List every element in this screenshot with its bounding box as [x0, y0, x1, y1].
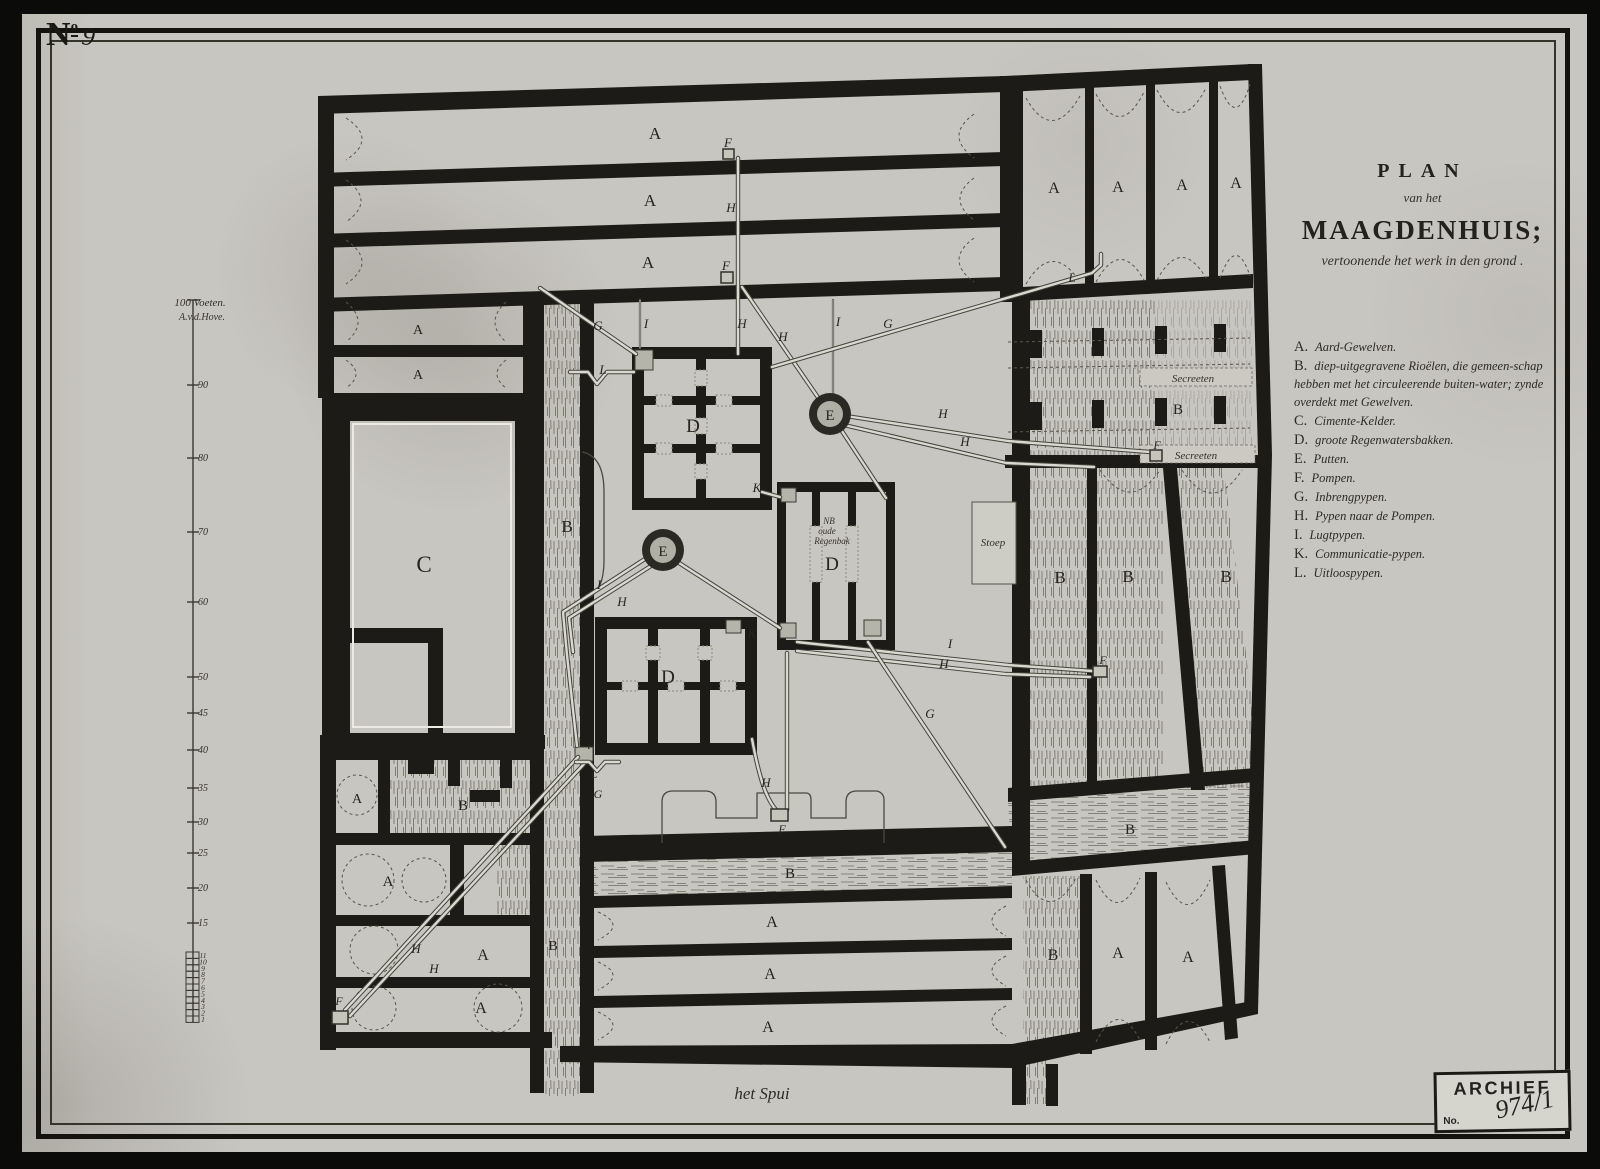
legend-key: E. — [1294, 451, 1306, 467]
scale-tick-label: 25 — [198, 848, 208, 859]
legend-text: Uitloospypen. — [1313, 566, 1383, 580]
scale-bar: 100 Voeten. A.v.d.Hove. 9080706050454035… — [174, 297, 225, 1024]
wall-opening — [622, 681, 638, 691]
dashed-arc — [1220, 84, 1250, 108]
legend-key: H. — [1294, 508, 1308, 524]
wall-opening — [695, 464, 707, 479]
wall — [1155, 326, 1167, 354]
pump-box — [771, 809, 788, 821]
plan-label-h: H — [760, 775, 771, 790]
wall — [1012, 88, 1023, 294]
dashed-arc — [1026, 96, 1080, 121]
title-plan: PLAN — [1280, 160, 1565, 183]
wall — [318, 277, 1004, 312]
plan-label-a: A — [1176, 177, 1188, 194]
legend-item-k: K.Communicatie-pypen. — [1294, 545, 1562, 563]
plan-label-f: F — [723, 135, 733, 150]
legend-text: diep-uitgegravene Rioëlen, die gemeen-sc… — [1294, 359, 1543, 409]
plan-label-regenbak: Regenbak — [813, 536, 850, 546]
plan-label-oude: oude — [818, 526, 836, 536]
legend-text: Inbrengpypen. — [1315, 490, 1387, 504]
scale-ladder-label: 1 — [201, 1015, 205, 1024]
plan-label-h: H — [428, 961, 439, 976]
dashed-arc — [960, 178, 974, 220]
plan-label-a: A — [762, 1019, 774, 1036]
dashed-arc — [992, 956, 1006, 986]
wall — [560, 1044, 1012, 1068]
legend-key: A. — [1294, 339, 1308, 355]
legend-item-f: F.Pompen. — [1294, 469, 1562, 487]
sewer-hatch — [1030, 300, 1155, 455]
legend-text: Aard-Gewelven. — [1315, 340, 1396, 354]
legend-text: Cimente-Kelder. — [1314, 414, 1396, 428]
plan-label-a: A — [352, 792, 363, 807]
sheet-number-n: N — [46, 16, 71, 53]
wall — [320, 735, 545, 749]
plan-label-h: H — [777, 329, 788, 344]
wall-opening — [695, 370, 707, 386]
scale-tick-label: 30 — [197, 817, 208, 828]
legend-item-l: L.Uitloospypen. — [1294, 564, 1562, 582]
plan-label-a: A — [1182, 949, 1194, 966]
sheet-number-sup: o — [71, 19, 79, 37]
wall-opening — [716, 443, 732, 454]
legend-item-g: G.Inbrengpypen. — [1294, 488, 1562, 506]
dashed-arc — [992, 906, 1006, 936]
plan-label-a: A — [383, 874, 394, 890]
legend-item-b: B.diep-uitgegravene Rioëlen, die gemeen-… — [1294, 357, 1562, 411]
plan-label-l: L — [598, 362, 606, 377]
plan-label-c: C — [416, 552, 431, 577]
legend-key: B. — [1294, 358, 1307, 374]
wall-opening — [846, 526, 858, 582]
wall — [378, 749, 390, 837]
wall — [1046, 1064, 1058, 1106]
wall — [580, 300, 594, 1048]
title-block: PLAN van het MAAGDENHUIS; vertoonende he… — [1280, 160, 1565, 270]
wall — [1030, 402, 1042, 430]
wall — [1080, 874, 1092, 1054]
plan-label-d: D — [686, 416, 700, 437]
plan-label-a: A — [649, 124, 662, 143]
scale-tick-label: 20 — [198, 883, 208, 894]
wall — [320, 977, 542, 988]
dashed-arc — [1157, 88, 1206, 113]
scale-tick-label: 45 — [198, 708, 208, 719]
scale-tick-label: 40 — [198, 745, 208, 756]
plan-label-f: F — [334, 994, 343, 1008]
scale-tick-label: 50 — [198, 672, 208, 683]
plan-label-a: A — [642, 253, 655, 272]
wall — [470, 790, 500, 802]
plan-label-i: I — [947, 636, 953, 651]
wall — [1085, 84, 1094, 292]
plan-label-k: K — [752, 480, 763, 495]
wall — [1092, 328, 1104, 356]
plan-label-i: i — [587, 738, 590, 752]
sewer-hatch — [1023, 876, 1080, 1054]
plan-label-d: D — [825, 554, 839, 575]
plan-label-h: H — [959, 434, 970, 449]
scale-tick-label: 90 — [198, 380, 208, 391]
plan-label-b: B — [458, 798, 468, 814]
plan-label-a: A — [413, 368, 424, 383]
dashed-arc — [346, 360, 356, 388]
plan-label-stoep: Stoep — [981, 537, 1006, 549]
plan-label-a: A — [766, 914, 778, 931]
legend-item-e: E.Putten. — [1294, 450, 1562, 468]
wall — [500, 758, 512, 788]
scale-tick-label: 35 — [197, 783, 208, 794]
legend-key: G. — [1294, 489, 1308, 505]
legend-text: Putten. — [1313, 452, 1349, 466]
plan-label-h: H — [725, 200, 736, 215]
legend-key: D. — [1294, 432, 1308, 448]
wall — [318, 152, 1004, 187]
legend-key: I. — [1294, 527, 1302, 543]
scale-tick-label: 70 — [198, 527, 208, 538]
wall — [1155, 398, 1167, 426]
legend-item-c: C.Cimente-Kelder. — [1294, 412, 1562, 430]
plan-label-b: B — [548, 939, 557, 954]
wall — [448, 752, 460, 786]
plan-label-a: A — [1112, 179, 1124, 196]
sheet-number: No9 — [46, 16, 95, 54]
wall — [428, 628, 443, 738]
pump-box — [332, 1011, 348, 1024]
dashed-arc — [598, 1012, 613, 1040]
wall-opening — [646, 646, 660, 660]
archive-stamp: ARCHIEF No. 974/1 — [1433, 1070, 1571, 1133]
wall-opening — [698, 646, 712, 660]
legend-item-d: D.groote Regenwatersbakken. — [1294, 431, 1562, 449]
plan-label-e: E — [825, 408, 834, 424]
scale-label-voeten: 100 Voeten. — [174, 297, 225, 309]
plan-label-a: A — [413, 323, 424, 338]
wall-opening — [656, 395, 672, 406]
legend-text: Communicatie-pypen. — [1315, 547, 1425, 561]
wall-opening — [720, 681, 736, 691]
legend-item-h: H.Pypen naar de Pompen. — [1294, 507, 1562, 525]
plan-label-a: A — [1230, 175, 1242, 192]
legend-key: F. — [1294, 470, 1305, 486]
plan-label-f: F — [721, 258, 731, 273]
dashed-arc — [959, 114, 974, 158]
plan-label-a: A — [644, 191, 657, 210]
plan-label-b: B — [561, 517, 572, 536]
plan-label-b: B — [1125, 822, 1135, 838]
plan-label-i: I — [643, 316, 649, 331]
legend-key: L. — [1294, 565, 1306, 581]
plan-label-a: A — [1112, 945, 1124, 962]
scale-tick-label: 80 — [198, 453, 208, 464]
legend-text: Pompen. — [1312, 471, 1356, 485]
sewer-hatch — [1097, 468, 1163, 788]
wall-opening — [656, 443, 672, 454]
dashed-arc — [598, 962, 613, 990]
junction-box — [864, 620, 881, 636]
plan-label-g: G — [925, 706, 935, 721]
wall — [320, 1032, 552, 1048]
title-subtitle: vertoonende het werk in den grond . — [1280, 254, 1565, 270]
plan-label-b: B — [1220, 567, 1231, 586]
legend-item-i: I.Lugtpypen. — [1294, 526, 1562, 544]
wall — [1015, 468, 1028, 790]
title-maagdenhuis: MAAGDENHUIS; — [1280, 215, 1565, 246]
legend-text: Lugtpypen. — [1309, 528, 1365, 542]
dashed-arc — [1166, 880, 1210, 905]
wall — [1146, 80, 1155, 290]
dashed-arc — [1096, 878, 1140, 903]
plan-label-b: B — [1122, 567, 1133, 586]
dashed-arc — [346, 118, 362, 160]
legend-key: C. — [1294, 413, 1307, 429]
plan-label-e: E — [658, 544, 667, 560]
plan-label-b: B — [1048, 947, 1059, 964]
sewer-hatch — [1028, 468, 1087, 788]
junction-box — [781, 488, 796, 502]
plan-label-b: B — [1173, 402, 1183, 418]
dashed-arc — [350, 926, 398, 974]
sheet-number-value: 9 — [80, 23, 97, 53]
plan-label-f: F — [777, 822, 786, 836]
dashed-arc — [497, 360, 506, 388]
dashed-arc — [598, 912, 613, 940]
legend-item-a: A.Aard-Gewelven. — [1294, 338, 1562, 356]
dashed-arc — [1157, 257, 1206, 280]
scale-tick-label: 15 — [198, 918, 208, 929]
junction-box — [726, 620, 741, 633]
plan-label-l: L — [1067, 270, 1075, 285]
plan-label-b: B — [785, 866, 795, 882]
plan-label-secreeten: Secreeten — [1175, 450, 1218, 462]
plan-label-g: G — [593, 318, 603, 333]
plan-label-secreeten: Secreeten — [1172, 373, 1215, 385]
wall — [318, 213, 1004, 248]
dashed-arc — [346, 180, 361, 222]
pump-box — [723, 149, 734, 159]
legend: A.Aard-Gewelven.B.diep-uitgegravene Rioë… — [1294, 338, 1562, 583]
legend-key: K. — [1294, 546, 1308, 562]
archival-photo-maagdenhuis-plan: { "corner": {"n": "N", "sup": "o", "numb… — [0, 0, 1600, 1169]
dashed-arc — [495, 302, 506, 342]
plan-label-a: A — [477, 947, 489, 964]
wall — [1209, 76, 1218, 288]
plan-label-k: K — [747, 626, 758, 641]
wall — [530, 1048, 544, 1093]
plan-label-h: H — [736, 316, 747, 331]
plan-label-i: I — [596, 577, 602, 592]
wall — [1092, 400, 1104, 428]
dashed-arc — [959, 238, 974, 282]
pump-box — [1093, 666, 1107, 677]
plan-label-f: F — [1098, 653, 1107, 667]
plan-label-nb: NB — [822, 516, 835, 526]
sewer-hatch — [544, 300, 580, 1048]
stamp-no-label: No. — [1443, 1116, 1459, 1127]
dashed-arc — [1096, 92, 1144, 117]
junction-box — [780, 623, 796, 638]
pump-box — [721, 272, 733, 283]
wall-opening — [716, 395, 732, 406]
plan-label-b: B — [1054, 568, 1065, 587]
plan-label-g: G — [594, 787, 603, 801]
plan-label-a: A — [1048, 180, 1060, 197]
wall — [408, 760, 434, 774]
street-label: het Spui — [697, 1084, 827, 1104]
wall — [318, 76, 1005, 114]
plan-label-a: A — [764, 966, 776, 983]
plan-label-h: H — [937, 406, 948, 421]
wall — [320, 735, 336, 1050]
plan-label-d: D — [661, 667, 675, 688]
plan-label-l: L — [590, 767, 598, 781]
plan-label-h: H — [616, 594, 627, 609]
wall — [1030, 330, 1042, 358]
wall — [594, 938, 1012, 958]
wall — [318, 345, 530, 357]
legend-text: Pypen naar de Pompen. — [1315, 509, 1435, 523]
plan-label-g: G — [883, 316, 893, 331]
plan-label-i: I — [835, 314, 841, 329]
legend-text: groote Regenwatersbakken. — [1315, 433, 1453, 447]
dashed-arc — [402, 858, 446, 902]
plan-label-h: H — [938, 656, 949, 671]
scale-tick-label: 60 — [198, 597, 208, 608]
title-van-het: van het — [1280, 190, 1565, 206]
scale-label-author: A.v.d.Hove. — [178, 312, 225, 323]
plan-label-a: A — [475, 1000, 487, 1017]
dashed-arc — [992, 1006, 1006, 1036]
wall — [1087, 468, 1097, 790]
plan-label-f: F — [1152, 438, 1161, 452]
wall — [1214, 396, 1226, 424]
plan-label-h: H — [410, 941, 421, 956]
wall — [594, 988, 1012, 1008]
